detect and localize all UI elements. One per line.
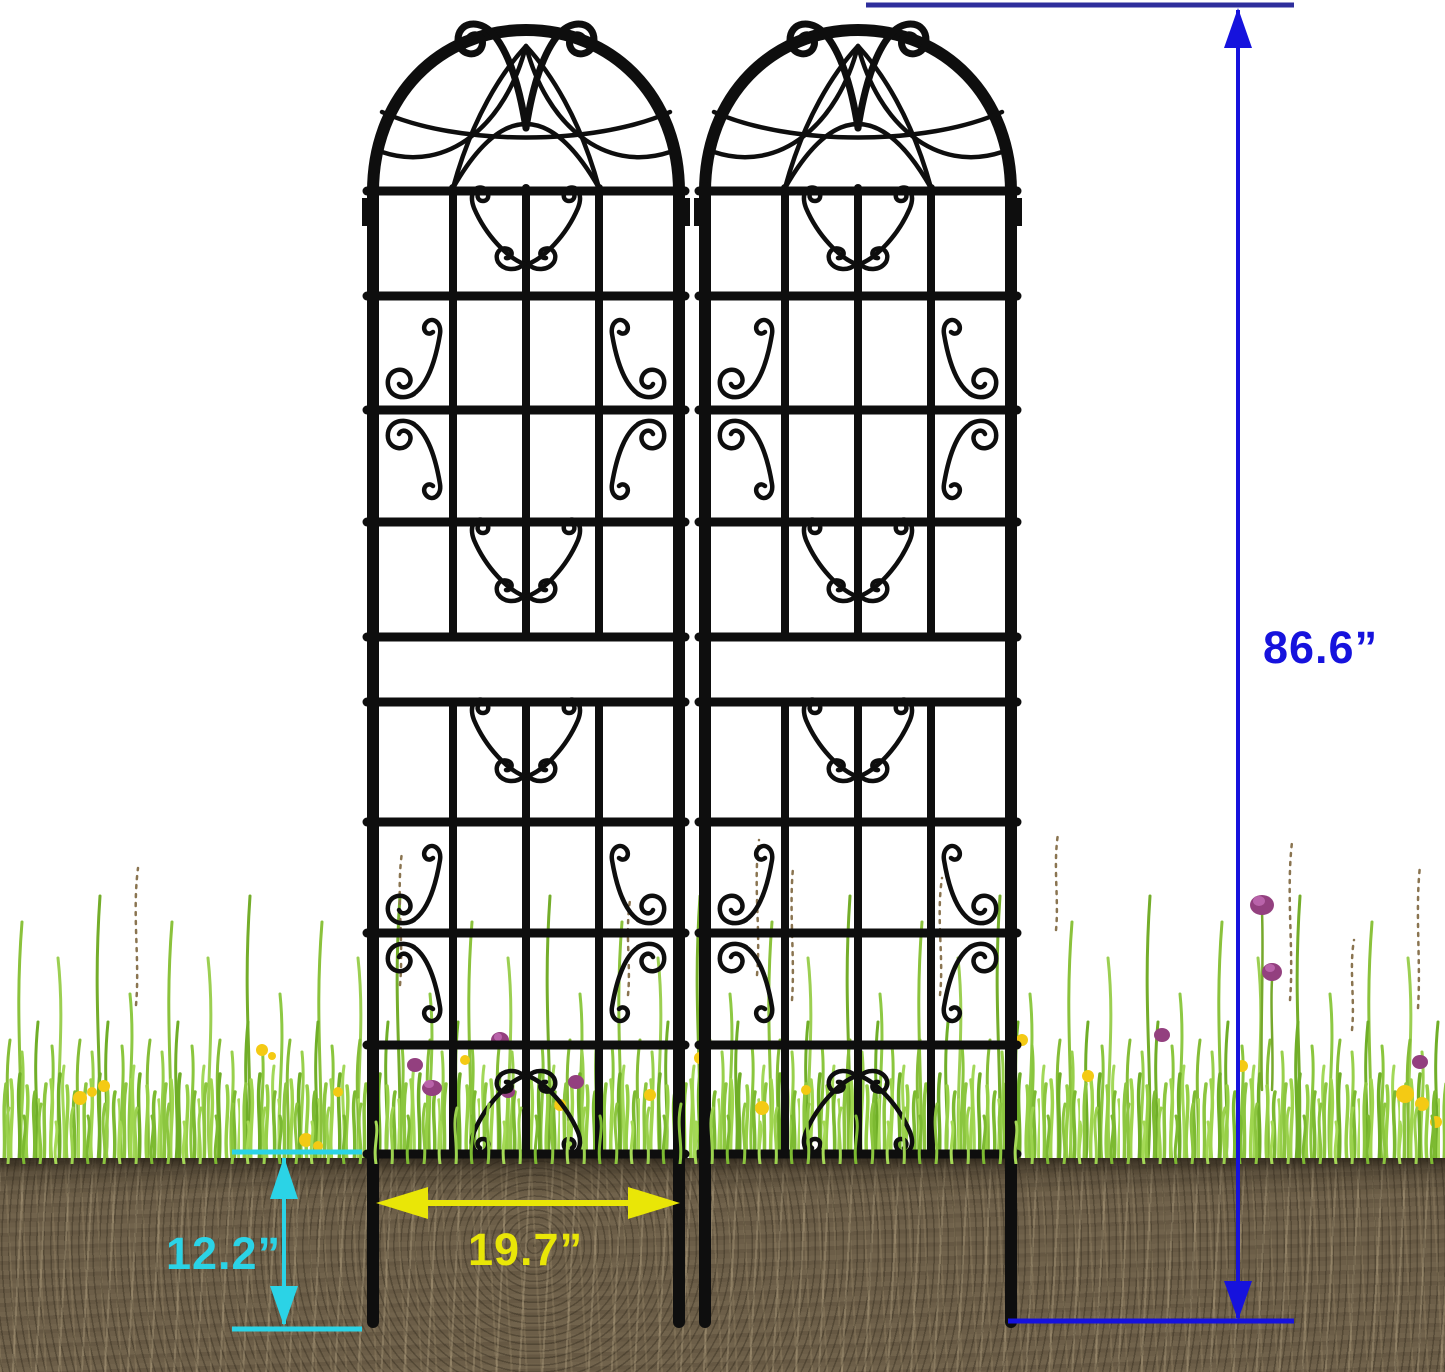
height-dimension-label: 86.6” (1263, 622, 1378, 674)
dimension-annotations (0, 0, 1445, 1372)
depth-dimension-label: 12.2” (166, 1228, 281, 1280)
arrow-right-icon (628, 1187, 680, 1219)
width-dimension-label: 19.7” (468, 1224, 583, 1276)
arrow-down-icon (270, 1286, 298, 1326)
height-dimension (866, 5, 1294, 1321)
arrow-down-icon (1224, 1281, 1252, 1320)
arrow-left-icon (376, 1187, 428, 1219)
arrow-up-icon (270, 1157, 298, 1199)
product-dimension-diagram: 86.6” 12.2” 19.7” (0, 0, 1445, 1372)
width-dimension (376, 1187, 680, 1219)
arrow-up-icon (1224, 8, 1252, 48)
